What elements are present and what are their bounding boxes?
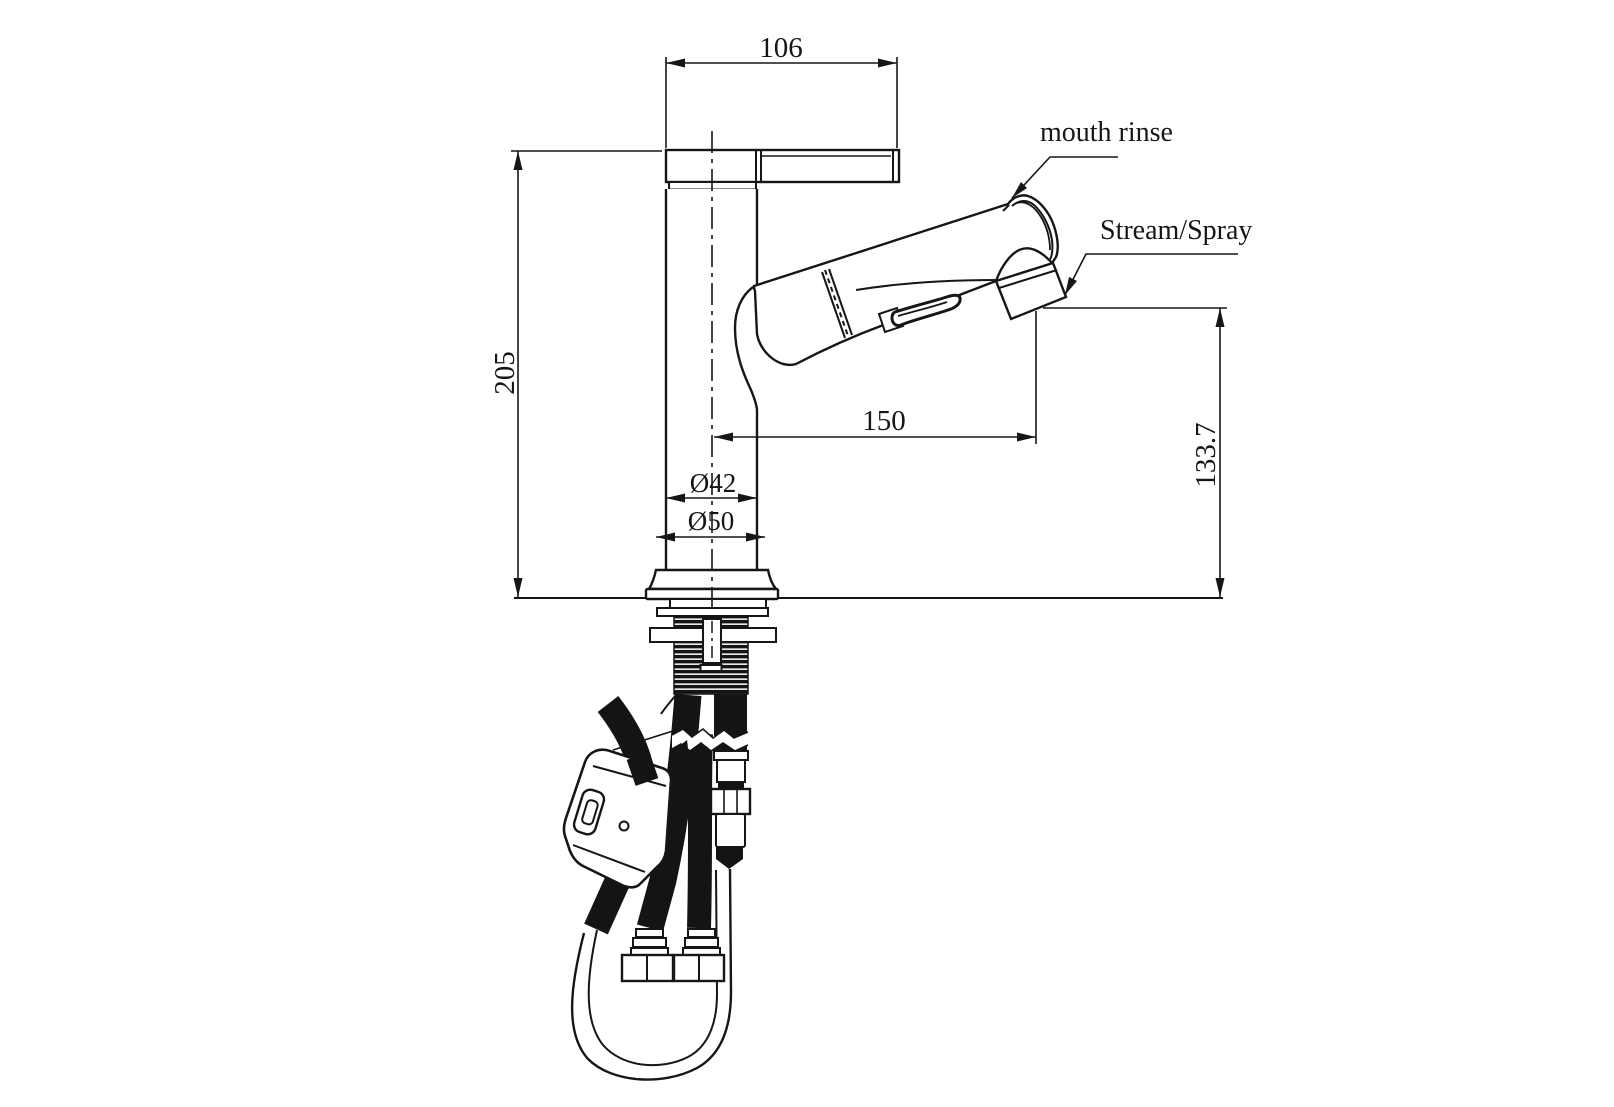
dim-133-7-text: 133.7: [1190, 422, 1222, 487]
supply-hose-end-left: [622, 929, 673, 981]
hose-weight: [564, 730, 676, 887]
dimension-106: 106: [666, 32, 897, 148]
supply-hose-right: [699, 734, 701, 928]
dim-dia42-text: Ø42: [690, 468, 737, 498]
connector-nut: [711, 789, 750, 814]
faucet-top-bar: [666, 150, 899, 182]
faucet-dimensional-diagram: 106 205 150 133.7 Ø42 Ø50 mouth: [0, 0, 1614, 1107]
quick-connect-fittings: [711, 751, 750, 869]
dim-dia50-text: Ø50: [688, 506, 735, 536]
shank-neck: [670, 599, 766, 608]
shank-slot-tick: [701, 665, 722, 671]
spray-nozzle: [996, 263, 1066, 319]
mouth-rinse-text: mouth rinse: [1040, 117, 1173, 148]
dim-150-text: 150: [862, 405, 906, 437]
spray-head-group: [735, 195, 1066, 409]
washer: [657, 608, 768, 616]
stream-spray-text: Stream/Spray: [1100, 215, 1252, 246]
faucet-body-group: [646, 131, 899, 694]
dimension-133-7: 133.7: [1043, 308, 1227, 597]
dim-205-text: 205: [489, 351, 521, 395]
under-sink-assembly: [564, 694, 750, 1080]
weight-screw-hole: [620, 822, 629, 831]
dim-106-text: 106: [759, 32, 803, 64]
dimension-205: 205: [489, 151, 662, 597]
label-stream-spray: Stream/Spray: [1065, 215, 1252, 295]
label-mouth-rinse: mouth rinse: [1012, 117, 1173, 198]
faucet-technical-drawing-page: 106 205 150 133.7 Ø42 Ø50 mouth: [0, 0, 1614, 1107]
threaded-shank: [650, 616, 776, 694]
